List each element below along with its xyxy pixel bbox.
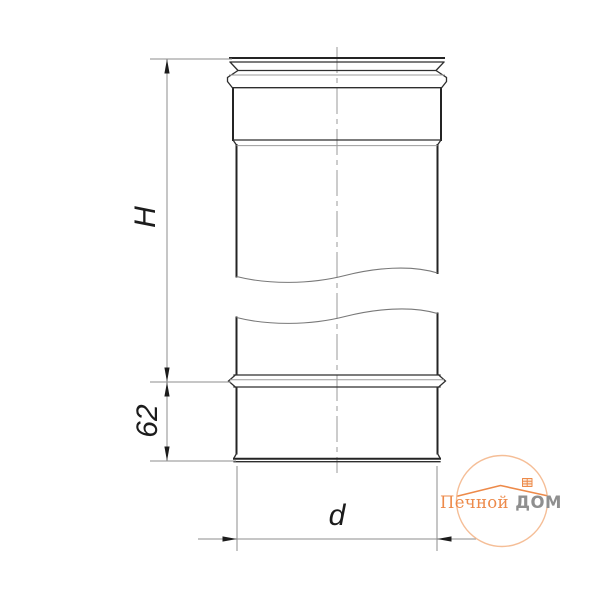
logo-text: Печной ДОМ [440,493,562,512]
dim-h-label: H [129,206,162,228]
brand-logo: Печной ДОМ [440,456,562,547]
arrow-up-icon [164,59,169,74]
arrow-down-icon [164,447,169,462]
dim-62-label: 62 [131,404,164,438]
technical-drawing-svg: H 62 d [0,0,600,600]
dim-d-label: d [329,499,347,532]
dimension-h: H [129,59,232,382]
arrow-up-icon [164,382,169,397]
arrow-right-icon [223,536,238,541]
dimension-62: 62 [131,382,236,461]
logo-text-secondary: ДОМ [515,493,562,512]
drawing-canvas: H 62 d [0,0,600,600]
arrow-down-icon [164,368,169,383]
dimension-d: d [198,466,476,551]
logo-text-primary: Печной [440,493,509,512]
pipe-drawing [228,47,447,473]
arrow-left-icon [437,536,452,541]
